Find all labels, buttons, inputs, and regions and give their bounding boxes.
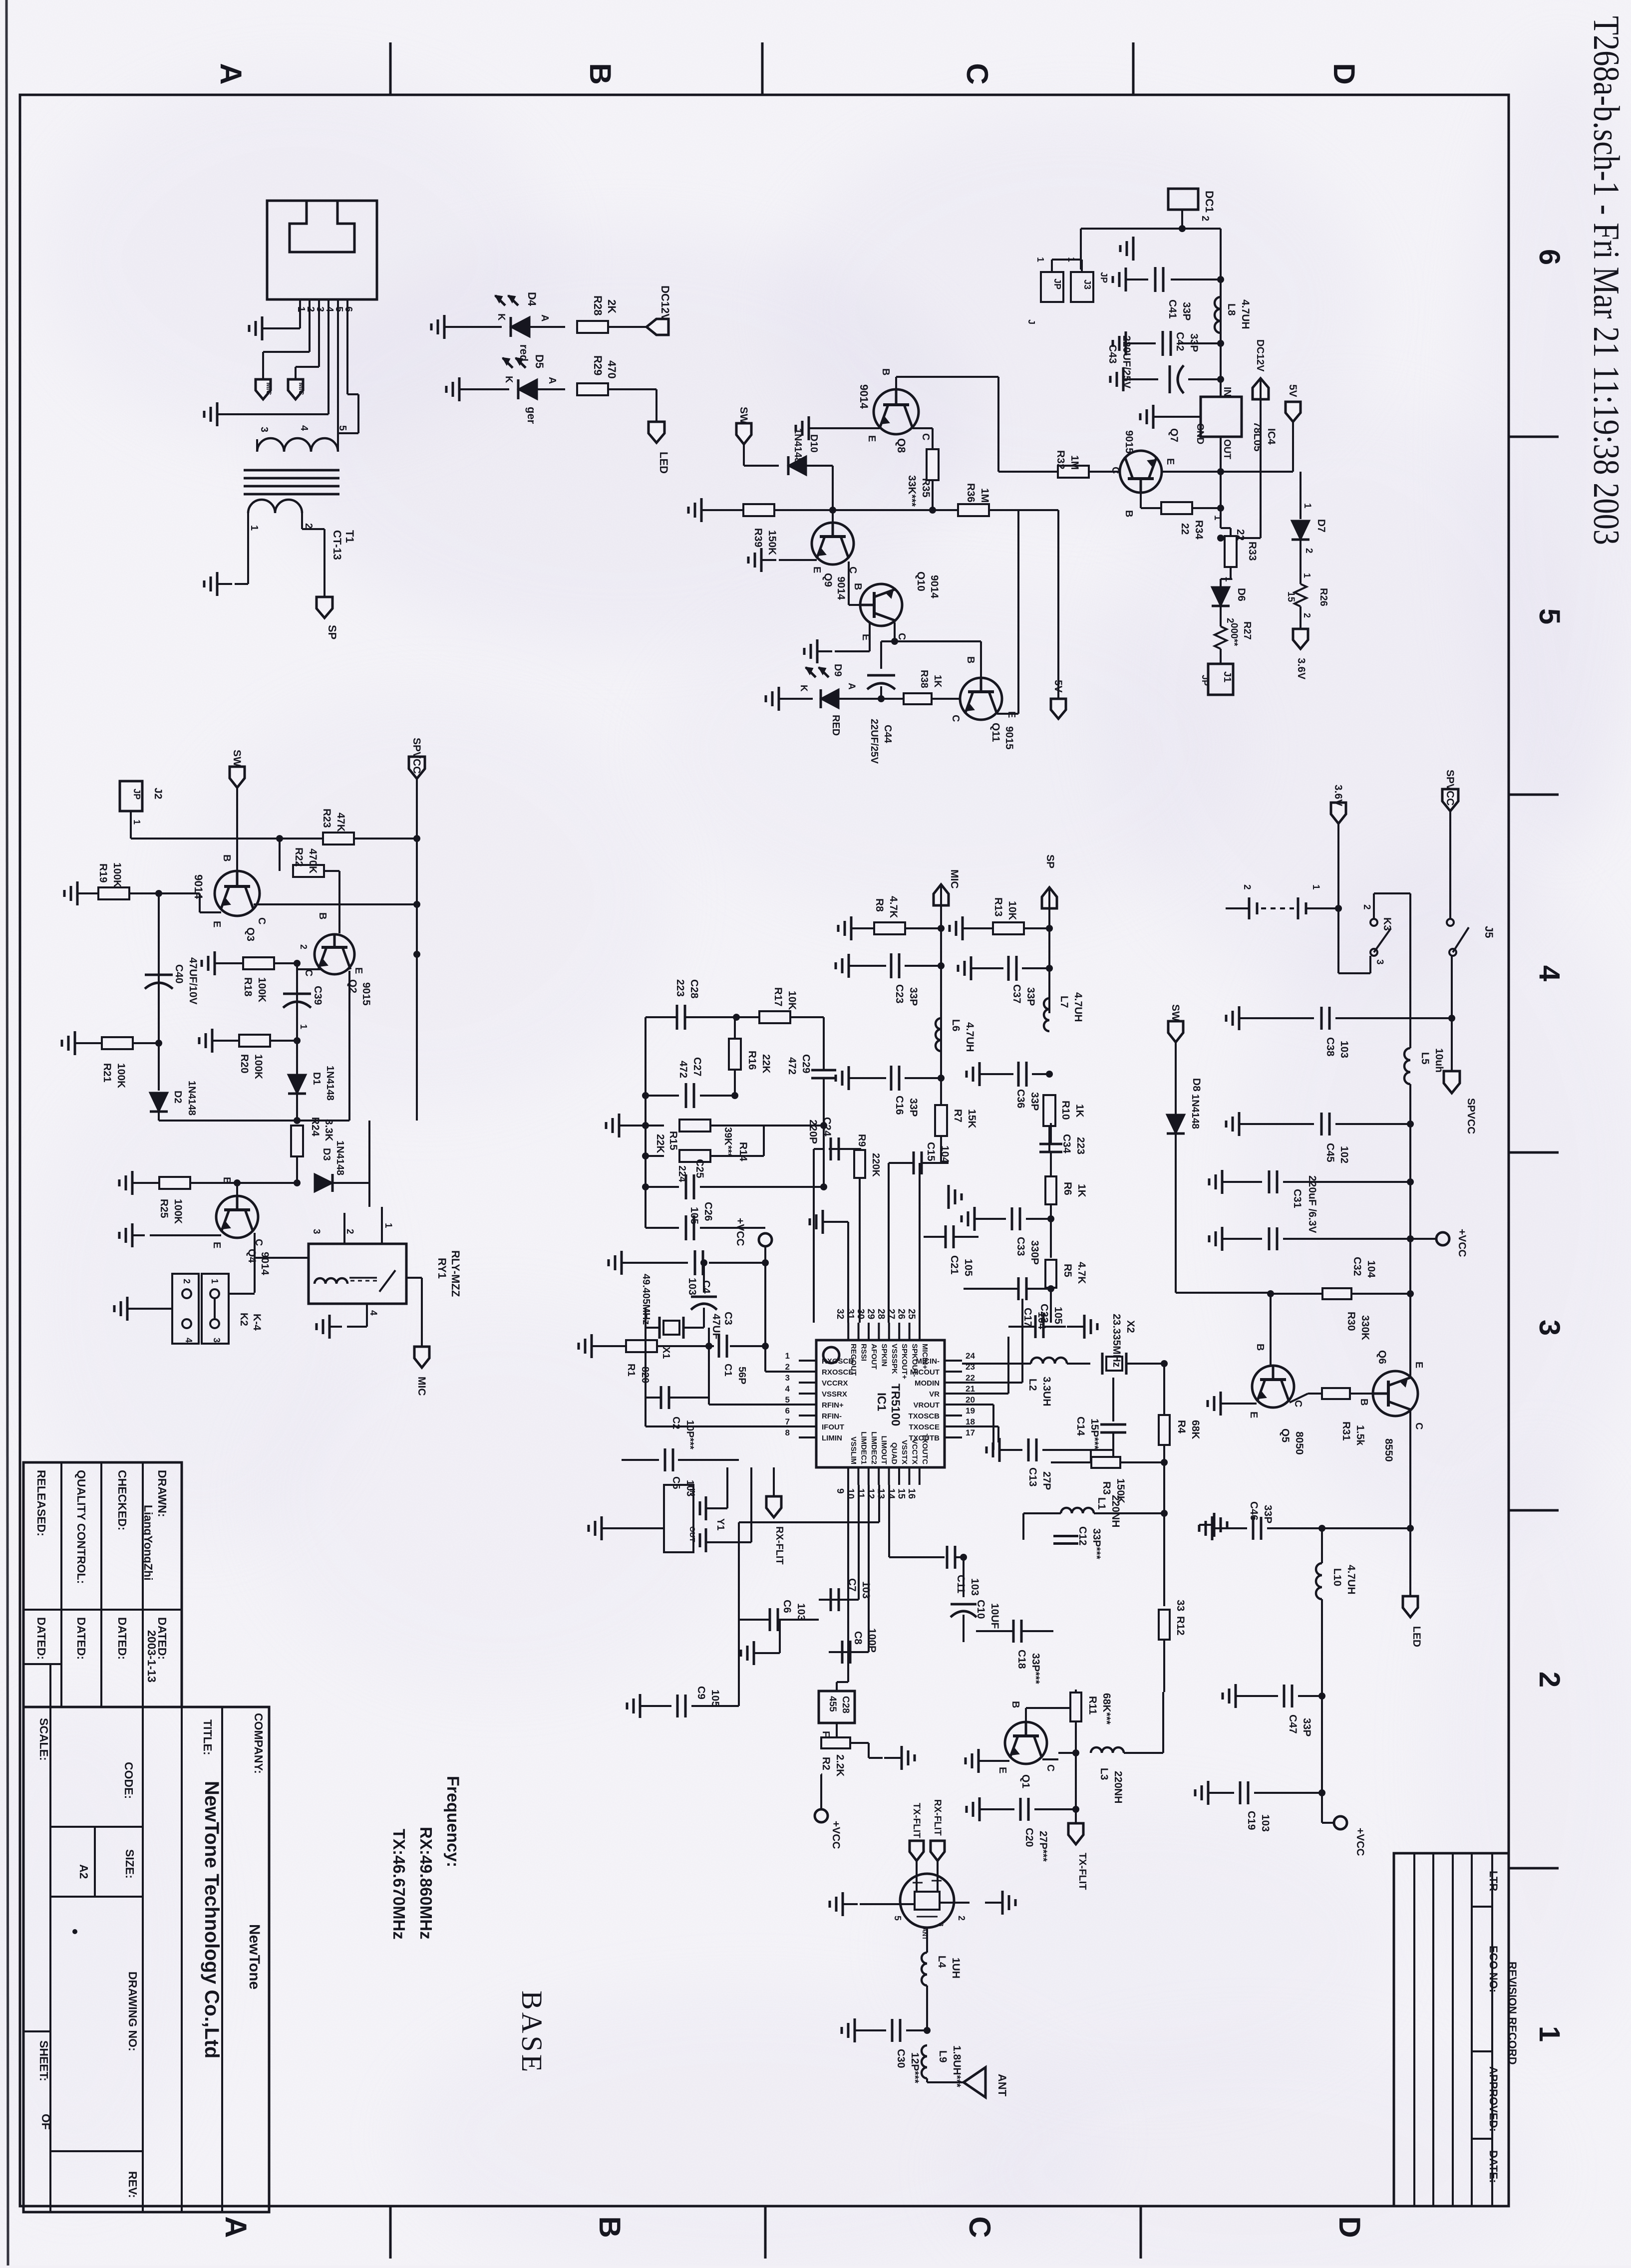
svg-text:RXOSCB: RXOSCB	[822, 1357, 854, 1366]
svg-text:C42: C42	[1174, 332, 1186, 351]
svg-text:100K: 100K	[115, 1063, 127, 1088]
svg-text:2: 2	[1361, 904, 1372, 910]
svg-text:VCCRX: VCCRX	[822, 1379, 848, 1388]
svg-text:R24: R24	[310, 1117, 321, 1136]
svg-text:ECO NO:: ECO NO:	[1487, 1946, 1500, 1992]
svg-text:TXOUTC: TXOUTC	[921, 1433, 929, 1464]
svg-text:33P: 33P	[1025, 987, 1036, 1006]
svg-text:C9: C9	[695, 1686, 707, 1700]
svg-text:103: 103	[969, 1578, 980, 1596]
svg-text:C: C	[961, 63, 994, 84]
svg-text:E: E	[1165, 458, 1176, 465]
svg-text:10K: 10K	[786, 991, 798, 1010]
svg-text:C28: C28	[840, 1696, 851, 1713]
svg-text:8050: 8050	[1294, 1431, 1305, 1455]
svg-text:10K: 10K	[1006, 901, 1018, 920]
svg-text:TXOSCB: TXOSCB	[908, 1412, 940, 1420]
svg-text:LED: LED	[657, 452, 670, 474]
svg-text:3: 3	[259, 427, 270, 432]
svg-text:L7: L7	[1058, 996, 1070, 1008]
svg-text:K: K	[798, 685, 809, 692]
svg-text:DATED:: DATED:	[75, 1617, 88, 1660]
svg-text:C44: C44	[882, 725, 893, 744]
svg-text:3: 3	[1533, 1320, 1566, 1336]
svg-text:1M: 1M	[979, 488, 990, 503]
svg-text:C32: C32	[1351, 1257, 1363, 1276]
svg-text:4.7UH: 4.7UH	[1345, 1565, 1357, 1595]
svg-text:28: 28	[876, 1309, 886, 1319]
svg-text:B: B	[584, 63, 617, 84]
svg-text:4: 4	[184, 1338, 194, 1343]
svg-text:RELEASED:: RELEASED:	[35, 1470, 48, 1536]
svg-text:RX-FLIT: RX-FLIT	[774, 1526, 785, 1565]
svg-text:E: E	[1413, 1362, 1424, 1368]
svg-text:R34: R34	[1193, 520, 1205, 540]
svg-text:1UH: 1UH	[950, 1958, 962, 1979]
svg-text:104: 104	[939, 1145, 951, 1163]
svg-text:R19: R19	[97, 863, 109, 883]
svg-text:RFIN+: RFIN+	[822, 1401, 844, 1410]
svg-text:TX-FLIT: TX-FLIT	[1077, 1853, 1088, 1890]
svg-text:R12: R12	[1175, 1616, 1186, 1636]
svg-text:330K: 330K	[1359, 1315, 1371, 1340]
svg-text:20: 20	[966, 1395, 975, 1405]
svg-text:000**: 000**	[1229, 623, 1239, 646]
svg-text:DC1: DC1	[1203, 191, 1216, 213]
svg-text:68K***: 68K***	[1101, 1693, 1112, 1725]
svg-text:1: 1	[1302, 503, 1312, 509]
svg-text:SPKOUT+: SPKOUT+	[900, 1344, 909, 1380]
svg-text:VSSSPK: VSSSPK	[890, 1344, 899, 1374]
svg-text:K: K	[503, 376, 514, 383]
svg-text:6: 6	[785, 1406, 790, 1416]
svg-text:MIC: MIC	[416, 1377, 427, 1396]
svg-text:100K: 100K	[256, 977, 268, 1002]
svg-text:B: B	[317, 912, 328, 919]
svg-text:R5: R5	[1062, 1264, 1073, 1277]
svg-text:+VCC: +VCC	[734, 1218, 746, 1246]
svg-text:R32: R32	[1055, 450, 1066, 470]
svg-text:1: 1	[1223, 576, 1234, 582]
svg-text:Q3: Q3	[245, 927, 256, 941]
svg-text:C1: C1	[722, 1364, 733, 1377]
svg-text:4.7UH: 4.7UH	[1240, 299, 1251, 329]
svg-text:47UF: 47UF	[710, 1314, 722, 1340]
svg-text:TX:46.670MHz: TX:46.670MHz	[390, 1829, 408, 1940]
svg-text:1: 1	[1035, 257, 1045, 262]
svg-text:C28: C28	[688, 979, 700, 999]
svg-text:C36: C36	[1015, 1089, 1026, 1109]
svg-text:2: 2	[344, 1229, 355, 1234]
svg-text:COMPANY:: COMPANY:	[252, 1713, 265, 1774]
svg-text:R36: R36	[965, 483, 977, 503]
svg-text:R1: R1	[626, 1364, 637, 1377]
svg-text:C20: C20	[1023, 1828, 1035, 1847]
svg-text:23.335MHz: 23.335MHz	[1111, 1314, 1122, 1367]
svg-text:C33: C33	[1015, 1237, 1026, 1256]
svg-text:JP: JP	[1099, 272, 1109, 283]
svg-text:IC1: IC1	[875, 1393, 888, 1411]
svg-text:DATE:: DATE:	[1487, 2150, 1500, 2183]
svg-text:R14: R14	[737, 1142, 749, 1161]
svg-text:RLY-MZZ: RLY-MZZ	[449, 1250, 462, 1297]
svg-text:8: 8	[785, 1428, 790, 1437]
svg-text:1: 1	[299, 1024, 309, 1029]
svg-text:47UF/10V: 47UF/10V	[187, 957, 199, 1005]
svg-text:E: E	[211, 1242, 222, 1248]
svg-text:REV:: REV:	[126, 2171, 139, 2198]
svg-text:SW: SW	[1170, 1004, 1181, 1021]
svg-text:220uF /6.3V: 220uF /6.3V	[1306, 1175, 1318, 1233]
svg-text:3.6V: 3.6V	[1332, 785, 1344, 806]
svg-text:MIC: MIC	[298, 382, 306, 395]
svg-text:IC4: IC4	[1266, 428, 1277, 445]
svg-text:100P: 100P	[866, 1628, 878, 1653]
svg-text:E: E	[1248, 1412, 1259, 1418]
svg-text:VROUT: VROUT	[914, 1401, 940, 1410]
svg-text:X2: X2	[1125, 1320, 1136, 1333]
svg-text:DRAWN:: DRAWN:	[156, 1470, 169, 1517]
svg-text:1: 1	[210, 1279, 220, 1284]
svg-text:33K***: 33K***	[906, 475, 918, 507]
svg-text:9014: 9014	[259, 1252, 271, 1275]
svg-text:4: 4	[1533, 965, 1566, 981]
svg-text:C3: C3	[722, 1312, 734, 1325]
svg-text:E: E	[866, 435, 877, 442]
svg-text:220NH: 220NH	[1110, 1495, 1121, 1527]
svg-text:220UF/25V: 220UF/25V	[1121, 335, 1132, 388]
svg-text:C: C	[950, 715, 961, 722]
svg-text:1: 1	[1533, 2026, 1566, 2042]
svg-text:5V: 5V	[1052, 680, 1064, 693]
svg-text:11: 11	[855, 1488, 866, 1499]
svg-text:L6: L6	[950, 1019, 962, 1032]
svg-text:1: 1	[785, 1351, 790, 1361]
svg-text:22K: 22K	[760, 1054, 772, 1074]
svg-text:C12: C12	[1077, 1526, 1088, 1546]
svg-text:APPROVED:: APPROVED:	[1487, 2066, 1500, 2132]
svg-text:C8: C8	[852, 1631, 864, 1645]
svg-text:C: C	[1413, 1422, 1424, 1429]
svg-text:TXOSCE: TXOSCE	[909, 1423, 940, 1431]
svg-text:C17: C17	[1022, 1308, 1033, 1327]
svg-text:B: B	[965, 656, 976, 663]
svg-text:33P***: 33P***	[1091, 1528, 1102, 1560]
svg-text:15K: 15K	[966, 1109, 978, 1129]
svg-text:A: A	[219, 2216, 253, 2238]
svg-text:12: 12	[865, 1488, 876, 1499]
svg-text:OUT: OUT	[688, 1526, 696, 1542]
svg-text:10UF: 10UF	[989, 1603, 1000, 1629]
svg-text:105: 105	[963, 1259, 974, 1276]
svg-text:D: D	[1333, 2216, 1366, 2238]
svg-text:L8: L8	[1226, 303, 1237, 316]
svg-text:RED: RED	[830, 715, 841, 736]
svg-text:13: 13	[876, 1488, 886, 1499]
svg-text:C40: C40	[173, 964, 185, 984]
svg-text:TX-FLIT: TX-FLIT	[911, 1803, 922, 1838]
svg-text:9: 9	[835, 1488, 845, 1494]
svg-text:105: 105	[1052, 1307, 1064, 1324]
svg-text:C: C	[303, 969, 314, 976]
svg-text:A: A	[539, 314, 550, 321]
svg-text:C41: C41	[1167, 299, 1178, 319]
svg-text:14: 14	[886, 1488, 896, 1499]
svg-text:9014: 9014	[858, 384, 870, 409]
svg-text:A: A	[846, 683, 857, 690]
svg-text:J1: J1	[1222, 671, 1233, 682]
svg-text:25: 25	[906, 1309, 917, 1320]
svg-text:3.6V: 3.6V	[1296, 658, 1307, 679]
svg-text:DRAWING NO:: DRAWING NO:	[126, 1972, 139, 2051]
svg-text:R10: R10	[1060, 1101, 1071, 1120]
svg-text:A: A	[547, 377, 558, 384]
svg-text:R9: R9	[856, 1134, 867, 1147]
svg-text:K: K	[496, 313, 507, 321]
svg-text:R31: R31	[1340, 1421, 1352, 1441]
svg-text:R39: R39	[752, 528, 764, 548]
svg-text:R21: R21	[101, 1063, 113, 1083]
svg-text:1N4148: 1N4148	[325, 1066, 335, 1101]
svg-text:R29: R29	[592, 355, 604, 375]
svg-text:R7: R7	[952, 1109, 964, 1123]
svg-text:REGOUT: REGOUT	[849, 1344, 858, 1376]
svg-text:33P: 33P	[1262, 1505, 1274, 1523]
svg-text:J: J	[1026, 319, 1036, 324]
svg-text:Q1: Q1	[1020, 1774, 1031, 1788]
svg-text:150K: 150K	[766, 530, 778, 555]
svg-text:2003-1-13: 2003-1-13	[145, 1630, 158, 1683]
svg-text:DATED:: DATED:	[35, 1617, 48, 1660]
svg-text:5: 5	[785, 1395, 790, 1405]
svg-text:3.3K: 3.3K	[323, 1119, 334, 1141]
svg-text:R20: R20	[239, 1054, 250, 1074]
svg-text:C23: C23	[894, 984, 905, 1004]
svg-text:+VCC: +VCC	[830, 1821, 842, 1849]
svg-text:NewTone: NewTone	[246, 1924, 263, 1989]
svg-text:39K***: 39K***	[722, 1127, 733, 1157]
svg-text:9014: 9014	[192, 874, 205, 899]
svg-text:J2: J2	[152, 788, 164, 799]
svg-text:78L05: 78L05	[1252, 422, 1263, 452]
svg-text:MICIN+: MICIN+	[921, 1344, 929, 1369]
svg-text:223: 223	[1075, 1137, 1086, 1154]
svg-text:33P: 33P	[1188, 333, 1200, 352]
svg-text:C: C	[920, 433, 931, 440]
svg-text:A: A	[214, 63, 248, 84]
svg-text:R13: R13	[992, 897, 1004, 917]
svg-text:105: 105	[709, 1690, 721, 1707]
svg-text:VCCTX: VCCTX	[910, 1439, 919, 1464]
svg-text:B: B	[1123, 510, 1134, 517]
svg-text:JP: JP	[1200, 675, 1210, 686]
svg-text:19: 19	[966, 1406, 975, 1416]
svg-text:3: 3	[785, 1373, 790, 1383]
svg-text:3.3UH: 3.3UH	[1041, 1377, 1052, 1407]
svg-text:C: C	[896, 633, 907, 640]
svg-text:22: 22	[966, 1373, 975, 1383]
svg-text:100K: 100K	[172, 1199, 184, 1224]
svg-text:5: 5	[1533, 608, 1566, 624]
svg-text:SCALE:: SCALE:	[37, 1718, 50, 1761]
svg-text:C43: C43	[1107, 344, 1118, 364]
svg-text:DC12V: DC12V	[1255, 339, 1266, 372]
svg-text:DATED:: DATED:	[116, 1617, 129, 1660]
svg-text:CODE:: CODE:	[122, 1762, 135, 1799]
svg-text:103: 103	[1260, 1814, 1271, 1832]
svg-text:7: 7	[785, 1417, 790, 1426]
svg-text:R16: R16	[746, 1051, 758, 1070]
svg-text:C34: C34	[1061, 1134, 1072, 1153]
svg-text:3: 3	[212, 1338, 222, 1343]
svg-text:C4: C4	[700, 1280, 712, 1294]
svg-text:4.7K: 4.7K	[1076, 1262, 1087, 1284]
svg-text:10P***: 10P***	[684, 1420, 695, 1449]
svg-text:29: 29	[865, 1309, 876, 1319]
svg-text:1K: 1K	[1074, 1104, 1085, 1118]
svg-text:LiangYongZhi: LiangYongZhi	[142, 1505, 155, 1581]
svg-text:16: 16	[906, 1488, 917, 1499]
svg-text:2: 2	[957, 1916, 967, 1921]
svg-text:C38: C38	[1324, 1037, 1336, 1057]
svg-text:R8: R8	[874, 898, 885, 912]
svg-text:SP: SP	[1044, 854, 1056, 868]
svg-text:18: 18	[966, 1417, 975, 1426]
svg-text:R18: R18	[242, 977, 254, 997]
svg-text:OUT: OUT	[1222, 439, 1232, 460]
svg-text:1K: 1K	[1076, 1184, 1087, 1197]
svg-text:L3: L3	[1098, 1768, 1110, 1780]
svg-text:4.7UH: 4.7UH	[964, 1022, 976, 1052]
svg-text:C: C	[256, 917, 267, 924]
svg-text:C18: C18	[1016, 1650, 1027, 1669]
svg-text:2: 2	[1200, 216, 1211, 221]
svg-text:1: 1	[1310, 884, 1321, 890]
svg-text:K2: K2	[238, 1313, 250, 1326]
svg-text:B: B	[593, 2216, 627, 2238]
svg-text:4.7K: 4.7K	[888, 896, 899, 918]
svg-text:Q7: Q7	[1168, 428, 1180, 442]
svg-text:C: C	[963, 2216, 996, 2238]
svg-text:R33: R33	[1247, 542, 1258, 561]
svg-text:100K: 100K	[253, 1054, 264, 1079]
svg-text:27P: 27P	[1041, 1471, 1052, 1490]
svg-text:E: E	[353, 967, 364, 974]
svg-text:4: 4	[299, 425, 310, 431]
svg-text:5: 5	[893, 1916, 903, 1921]
svg-text:TITLE:: TITLE:	[201, 1719, 214, 1755]
svg-text:C11: C11	[955, 1575, 967, 1594]
svg-text:SP: SP	[326, 625, 338, 639]
svg-text:TR5100: TR5100	[889, 1384, 902, 1426]
svg-text:R23: R23	[321, 809, 332, 828]
svg-text:9015: 9015	[1123, 430, 1135, 454]
svg-text:VSSLIM: VSSLIM	[849, 1436, 858, 1464]
svg-text:L9: L9	[937, 2050, 949, 2063]
svg-text:2: 2	[1533, 1672, 1566, 1688]
svg-text:33P: 33P	[1181, 302, 1192, 320]
svg-text:IFOUT: IFOUT	[822, 1423, 844, 1431]
svg-text:D8: D8	[1191, 1078, 1202, 1092]
svg-text:22UF/25V: 22UF/25V	[869, 719, 880, 764]
svg-text:C16: C16	[894, 1096, 905, 1115]
svg-text:T268a-b.sch-1 - Fri Mar 21 11:: T268a-b.sch-1 - Fri Mar 21 11:19:38 2003	[1586, 16, 1627, 545]
svg-text:D4: D4	[526, 292, 538, 306]
svg-text:R22: R22	[293, 848, 305, 867]
svg-text:C31: C31	[1292, 1189, 1303, 1208]
svg-text:2K: 2K	[606, 299, 618, 313]
svg-text:SPVCC: SPVCC	[1465, 1098, 1477, 1134]
svg-text:1.5k: 1.5k	[1354, 1425, 1366, 1445]
svg-text:C: C	[1110, 467, 1121, 474]
svg-text:K-4: K-4	[251, 1314, 263, 1331]
svg-text:L4: L4	[936, 1956, 948, 1968]
svg-text:SW: SW	[738, 407, 749, 424]
svg-text:220NH: 220NH	[1112, 1771, 1124, 1803]
svg-text:C6: C6	[781, 1600, 793, 1613]
svg-text:15P***: 15P***	[1089, 1418, 1100, 1450]
svg-text:10: 10	[845, 1488, 855, 1499]
svg-text:4.7UH: 4.7UH	[1072, 992, 1084, 1022]
svg-text:472: 472	[786, 1057, 798, 1075]
svg-text:R30: R30	[1345, 1312, 1357, 1331]
svg-text:MODIN: MODIN	[915, 1379, 940, 1388]
svg-text:Q10: Q10	[915, 571, 927, 591]
svg-text:VSSTX: VSSTX	[900, 1440, 909, 1464]
svg-text:SPVCC: SPVCC	[1444, 770, 1456, 806]
svg-text:2: 2	[785, 1362, 790, 1372]
svg-text:C19: C19	[1246, 1811, 1257, 1830]
svg-text:1K: 1K	[932, 675, 943, 688]
svg-text:QUAD: QUAD	[890, 1442, 899, 1464]
svg-text:104: 104	[1365, 1260, 1377, 1278]
svg-text:L5: L5	[1419, 1052, 1431, 1065]
svg-text:C27: C27	[691, 1057, 703, 1077]
svg-text:C46: C46	[1248, 1501, 1260, 1521]
svg-text:5: 5	[337, 425, 348, 431]
svg-text:9014: 9014	[929, 575, 940, 598]
svg-text:C25: C25	[694, 1159, 705, 1178]
svg-text:R11: R11	[1087, 1696, 1098, 1715]
svg-text:E: E	[211, 921, 222, 927]
svg-text:32: 32	[835, 1309, 845, 1319]
svg-text:SPKIN: SPKIN	[880, 1344, 888, 1367]
svg-text:223: 223	[674, 979, 686, 997]
svg-text:C47: C47	[1287, 1714, 1299, 1734]
svg-text:1N4148: 1N4148	[334, 1140, 345, 1175]
svg-text:+VCC: +VCC	[1456, 1229, 1468, 1257]
svg-text:1: 1	[1302, 573, 1312, 578]
svg-text:QUALITY CONTROL:: QUALITY CONTROL:	[75, 1470, 88, 1584]
svg-text:1: 1	[1212, 515, 1223, 521]
svg-text:R2: R2	[820, 1757, 832, 1770]
svg-text:220P: 220P	[807, 1120, 819, 1144]
svg-text:D1: D1	[311, 1072, 322, 1085]
svg-text:SW: SW	[231, 750, 243, 767]
svg-text:K3: K3	[1381, 917, 1393, 931]
svg-text:C37: C37	[1011, 984, 1022, 1004]
svg-text:33: 33	[1175, 1600, 1186, 1611]
svg-text:LTR: LTR	[1487, 1871, 1500, 1891]
svg-text:56P: 56P	[736, 1367, 747, 1385]
svg-text:1M: 1M	[1069, 455, 1080, 470]
svg-text:R17: R17	[772, 987, 784, 1007]
svg-text:9014: 9014	[835, 576, 847, 600]
svg-text:C14: C14	[1075, 1417, 1086, 1436]
svg-text:AFOUT: AFOUT	[870, 1344, 878, 1370]
svg-text:24: 24	[966, 1351, 975, 1361]
svg-text:3: 3	[1374, 959, 1385, 965]
